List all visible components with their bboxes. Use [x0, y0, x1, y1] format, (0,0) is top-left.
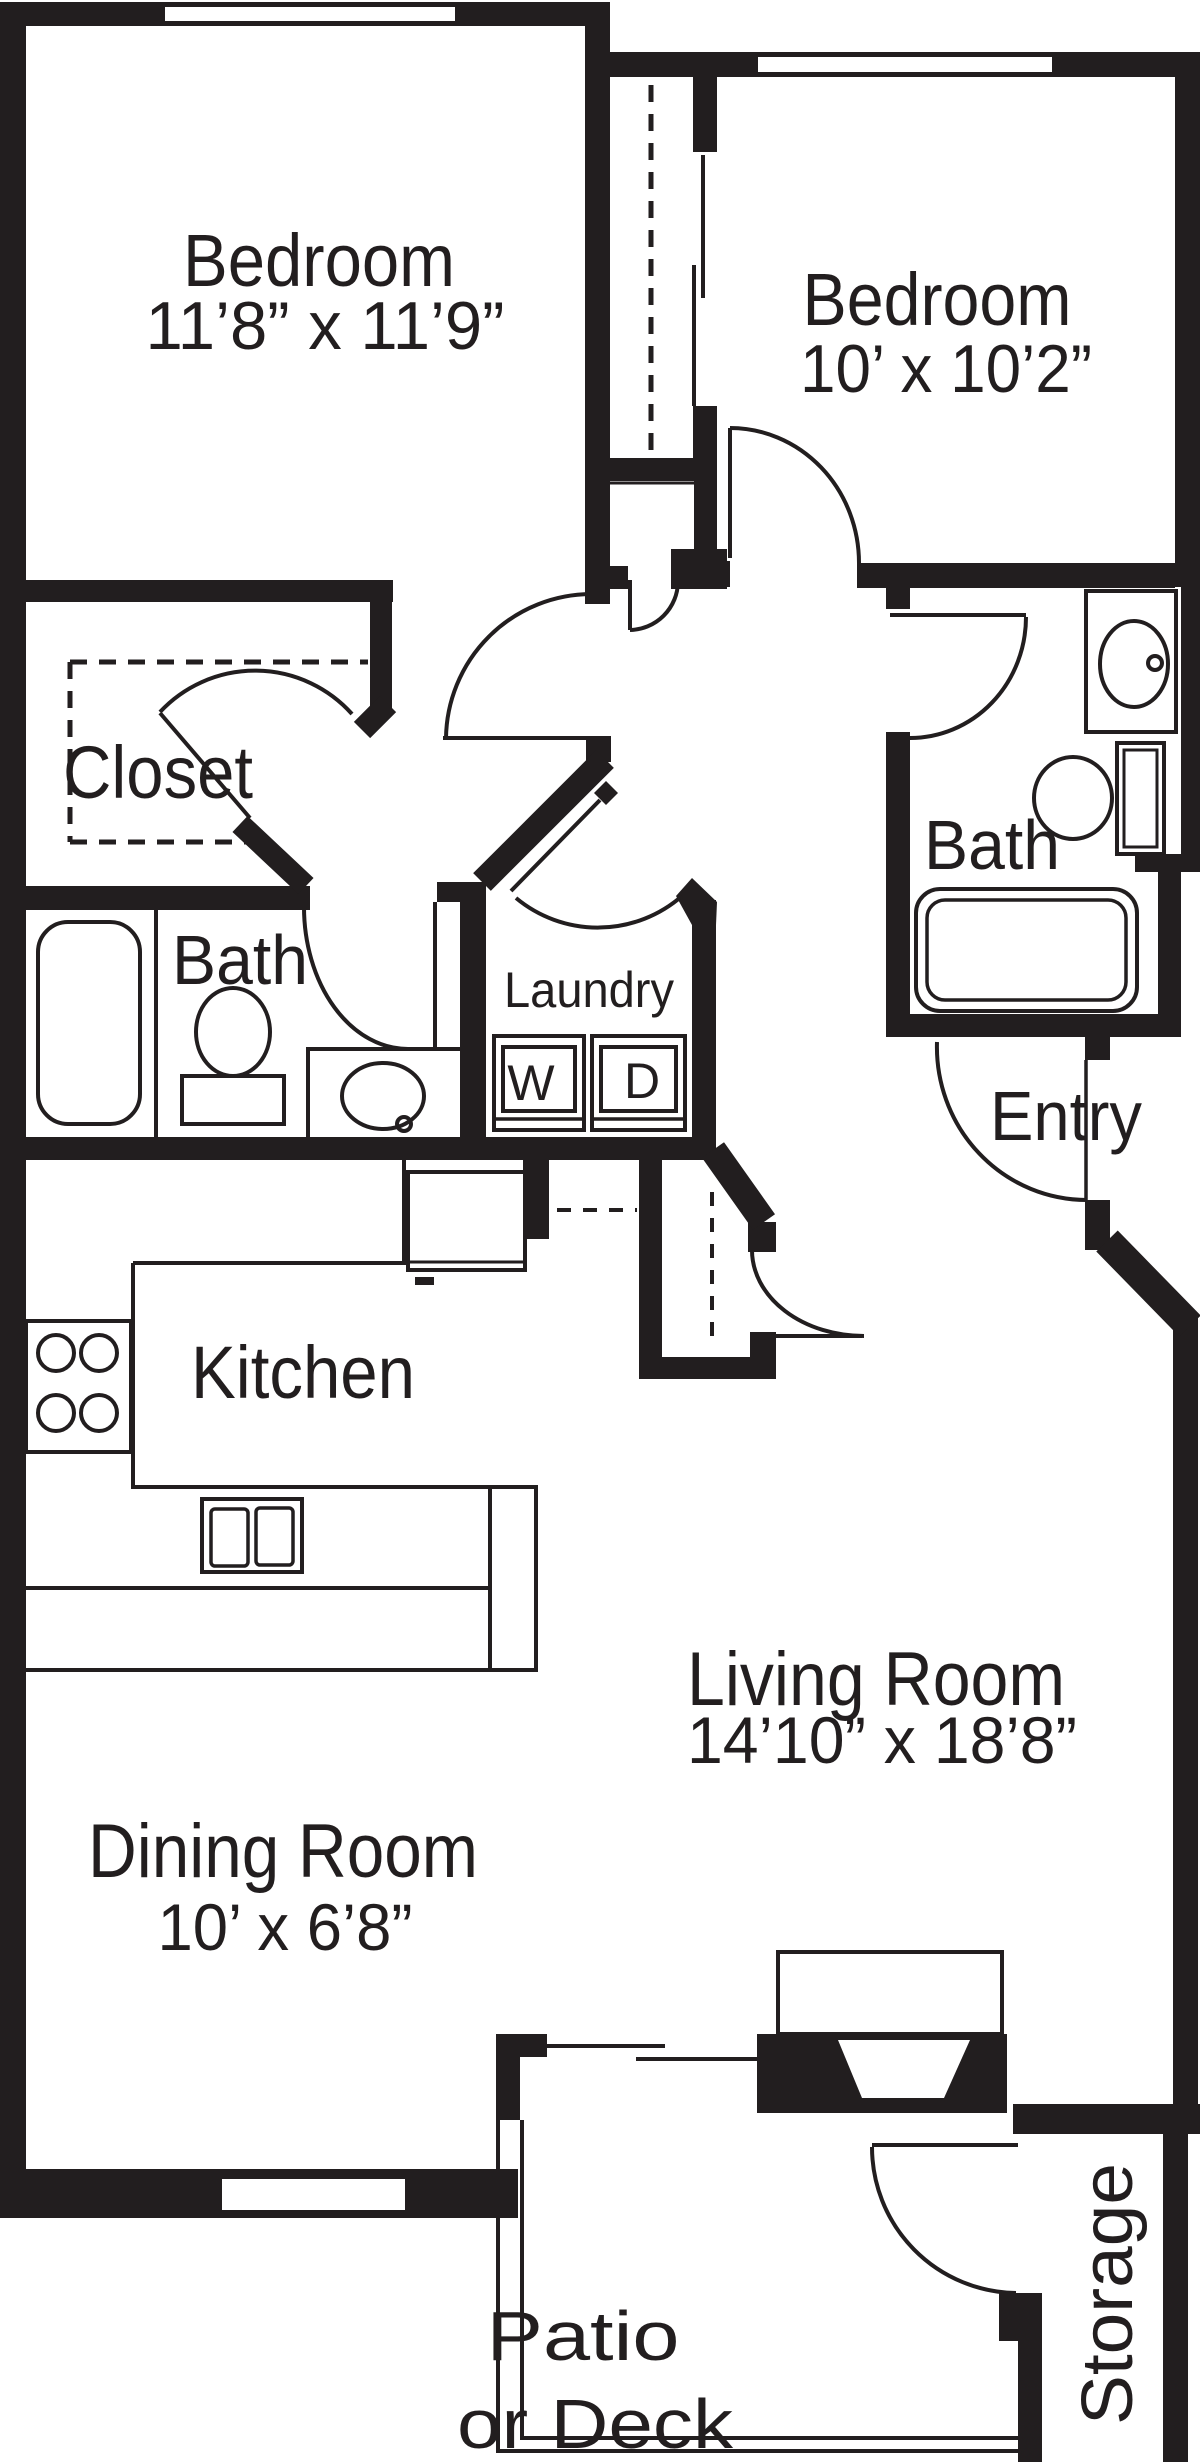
svg-text:Bath: Bath: [172, 921, 308, 999]
svg-text:Storage: Storage: [1068, 2163, 1148, 2425]
svg-text:Entry: Entry: [990, 1077, 1142, 1155]
svg-text:or Deck: or Deck: [457, 2385, 734, 2462]
svg-text:Laundry: Laundry: [504, 962, 674, 1018]
svg-text:Bedroom: Bedroom: [803, 258, 1072, 341]
svg-text:14’10” x 18’8”: 14’10” x 18’8”: [687, 1703, 1077, 1777]
svg-text:Closet: Closet: [63, 731, 253, 814]
svg-text:10’ x 6’8”: 10’ x 6’8”: [158, 1890, 413, 1964]
svg-text:Dining Room: Dining Room: [88, 1809, 478, 1894]
svg-text:Bath: Bath: [924, 806, 1060, 884]
svg-text:Patio: Patio: [487, 2297, 680, 2375]
svg-text:W: W: [507, 1055, 555, 1111]
svg-text:10’ x 10’2”: 10’ x 10’2”: [800, 331, 1092, 407]
svg-text:Kitchen: Kitchen: [191, 1331, 415, 1414]
svg-text:11’8” x 11’9”: 11’8” x 11’9”: [146, 288, 505, 364]
svg-text:D: D: [624, 1053, 660, 1109]
